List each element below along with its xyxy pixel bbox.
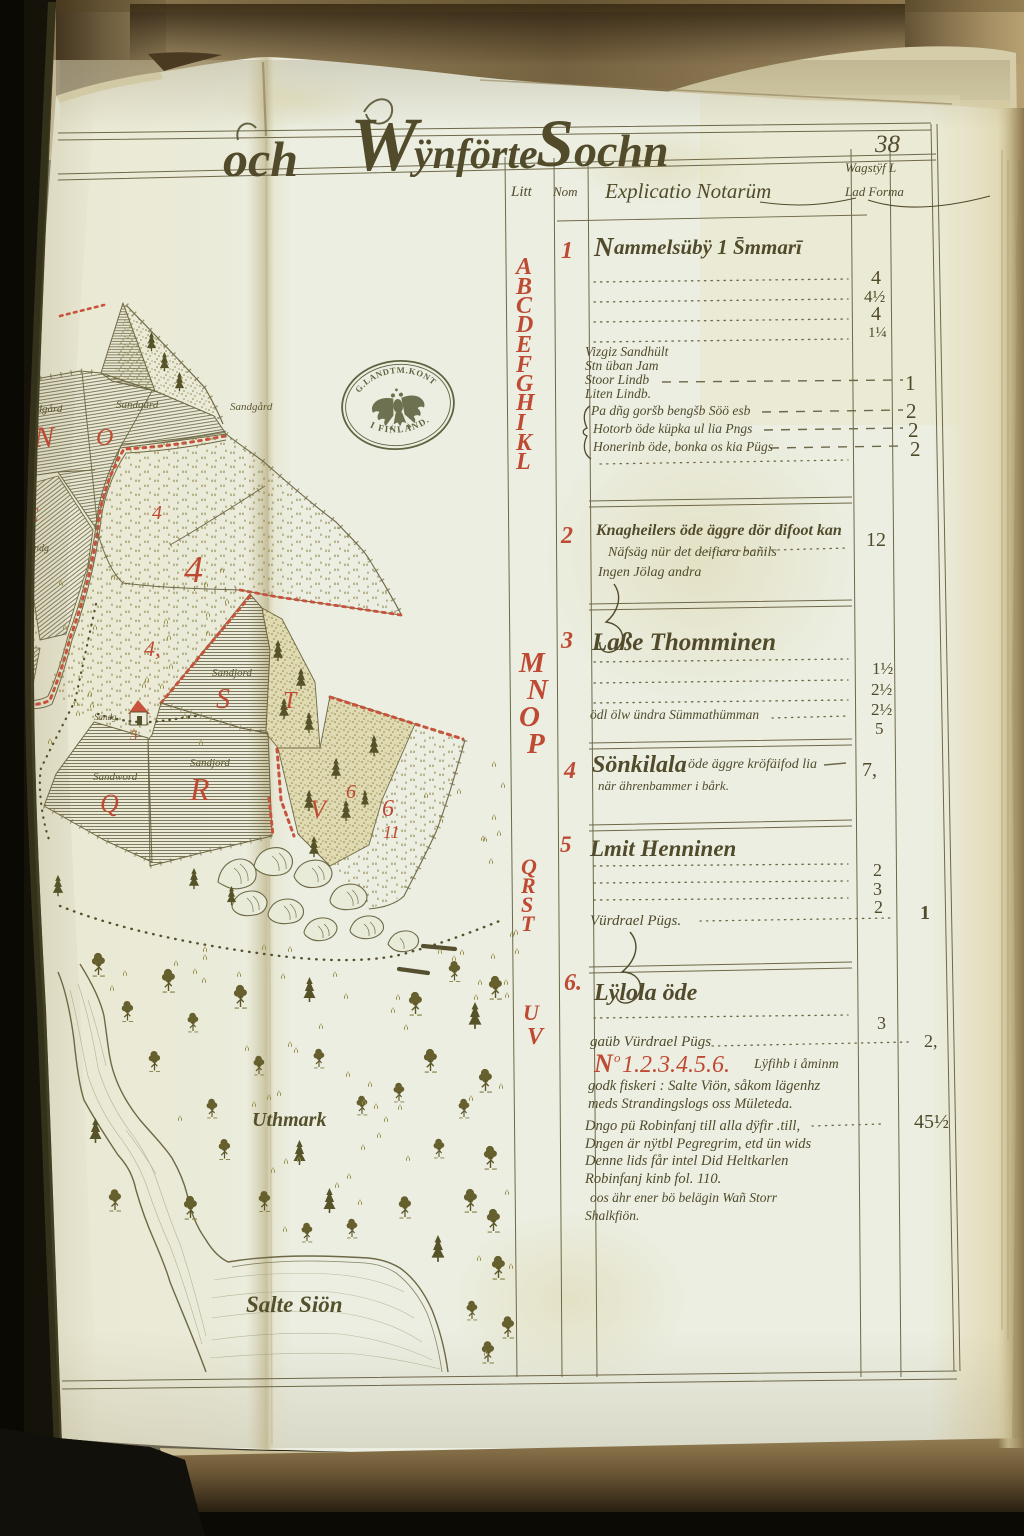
svg-text:6: 6 — [346, 781, 356, 803]
svg-text:1.2.3.4.5.6.: 1.2.3.4.5.6. — [622, 1052, 730, 1078]
svg-text:ÿnförte: ÿnförte — [409, 132, 538, 178]
svg-text:Shalkfiön.: Shalkfiön. — [585, 1208, 639, 1223]
svg-text:Dngo pü Robinfanj till alla dÿ: Dngo pü Robinfanj till alla dÿfir .till, — [584, 1118, 800, 1134]
svg-text:T: T — [283, 688, 298, 714]
svg-text:Lÿfihb i åminm: Lÿfihb i åminm — [753, 1057, 839, 1072]
svg-text:4: 4 — [184, 549, 203, 591]
svg-text:när ährenbammer i bårk.: när ährenbammer i bårk. — [598, 778, 729, 793]
svg-text:4: 4 — [563, 758, 576, 784]
svg-text:38: 38 — [874, 131, 901, 158]
svg-text:Ingen Jölag andra: Ingen Jölag andra — [597, 565, 701, 580]
svg-text:Dngen är nÿtbl Pegregrim, etd: Dngen är nÿtbl Pegregrim, etd ün wids — [584, 1136, 812, 1152]
svg-text:godk fiskeri : Salte Viön, såk: godk fiskeri : Salte Viön, såkom lägenhz — [588, 1078, 820, 1094]
svg-text:S: S — [216, 684, 230, 715]
svg-text:6: 6 — [382, 796, 394, 822]
svg-text:Hotorb öde küpka ul lia Pngs: Hotorb öde küpka ul lia Pngs — [592, 421, 752, 436]
svg-text:4: 4 — [871, 267, 881, 289]
svg-text:O: O — [96, 425, 113, 451]
svg-text:Honerinb öde, bonka os kia Püg: Honerinb öde, bonka os kia Pügs — [592, 439, 773, 454]
svg-text:ochn: ochn — [574, 125, 669, 176]
svg-text:7,: 7, — [862, 759, 877, 781]
svg-text:3: 3 — [877, 1013, 886, 1033]
svg-text:Sandjord: Sandjord — [212, 667, 252, 679]
svg-text:P: P — [526, 728, 545, 760]
svg-text:1: 1 — [905, 371, 916, 395]
svg-text:Näfsäg nür det deifiara bañils: Näfsäg nür det deifiara bañils — [607, 545, 777, 560]
svg-text:S: S — [536, 105, 574, 181]
svg-text:2½: 2½ — [871, 680, 893, 699]
svg-text:Robinfanj kinb fol. 110.: Robinfanj kinb fol. 110. — [584, 1171, 721, 1187]
svg-text:Sandjord: Sandjord — [190, 757, 230, 769]
svg-text:Salte Siön: Salte Siön — [246, 1292, 343, 1317]
svg-text:2: 2 — [910, 437, 921, 461]
svg-text:5: 5 — [875, 719, 884, 738]
svg-text:Vürdrael Pügs.: Vürdrael Pügs. — [590, 913, 681, 929]
svg-text:Sandword: Sandword — [93, 771, 138, 783]
svg-text:gaüb Vürdrael Pügs: gaüb Vürdrael Pügs — [590, 1034, 711, 1050]
svg-text:V: V — [527, 1024, 545, 1050]
svg-text:12: 12 — [866, 529, 886, 551]
svg-text:4,: 4, — [144, 636, 161, 661]
svg-text:Explicatio Notarüm: Explicatio Notarüm — [604, 179, 771, 203]
svg-text:L: L — [515, 449, 531, 475]
svg-text:och: och — [223, 131, 298, 187]
svg-text:1: 1 — [561, 238, 573, 264]
svg-text:1: 1 — [920, 902, 930, 924]
svg-text:ammelsübÿ 1 S̄mmarī: ammelsübÿ 1 S̄mmarī — [614, 235, 804, 259]
svg-text:2,: 2, — [924, 1031, 938, 1051]
svg-text:Liten Lindb.: Liten Lindb. — [584, 386, 651, 401]
svg-text:4: 4 — [871, 303, 881, 325]
svg-text:Stoor Lindb: Stoor Lindb — [585, 372, 649, 387]
svg-text:3: 3 — [873, 879, 882, 899]
svg-text:Lÿlola öde: Lÿlola öde — [593, 980, 698, 1006]
svg-text:Q: Q — [100, 789, 119, 818]
svg-text:1¼: 1¼ — [868, 325, 887, 341]
svg-text:Lmit Henninen: Lmit Henninen — [589, 836, 736, 861]
svg-text:Lad Forma: Lad Forma — [844, 184, 904, 199]
svg-text:Nom: Nom — [552, 184, 578, 199]
svg-text:Uthmark: Uthmark — [252, 1109, 326, 1131]
svg-text:5: 5 — [560, 832, 572, 857]
svg-text:o: o — [614, 1050, 621, 1065]
svg-text:Sönkilala: Sönkilala — [592, 752, 687, 778]
svg-text:2: 2 — [560, 523, 573, 549]
svg-text:Wagstÿf L: Wagstÿf L — [845, 160, 896, 175]
svg-text:W: W — [350, 103, 423, 187]
svg-text:ödl ölw ündra Sümmathümman: ödl ölw ündra Sümmathümman — [590, 707, 759, 722]
svg-text:Sandgård: Sandgård — [116, 399, 159, 411]
svg-text:meds Strandingslogs oss Mülete: meds Strandingslogs oss Mületeda. — [588, 1096, 793, 1112]
svg-text:2: 2 — [874, 897, 883, 917]
svg-text:Vizgiz Sandhült: Vizgiz Sandhült — [585, 344, 670, 359]
svg-text:2: 2 — [873, 860, 882, 880]
svg-text:1½: 1½ — [872, 659, 894, 678]
svg-text:R: R — [189, 771, 210, 807]
svg-text:2½: 2½ — [871, 700, 893, 719]
svg-text:6.: 6. — [564, 970, 582, 996]
svg-text:Litt: Litt — [510, 184, 533, 200]
svg-text:U: U — [523, 1000, 540, 1025]
svg-text:3: 3 — [560, 628, 573, 654]
svg-text:45½: 45½ — [914, 1111, 949, 1133]
svg-text:Denne lids får intel Did Heltk: Denne lids får intel Did Heltkarlen — [584, 1153, 788, 1169]
svg-text:N: N — [593, 232, 615, 262]
svg-text:T: T — [521, 911, 536, 936]
svg-text:öde äggre kröfäifod lia: öde äggre kröfäifod lia — [688, 757, 817, 772]
svg-text:oos ähr ener bö belägin Wañ St: oos ähr ener bö belägin Wañ Storr — [590, 1190, 778, 1205]
svg-text:N: N — [593, 1049, 614, 1078]
svg-text:Laße Thomminen: Laße Thomminen — [591, 629, 776, 656]
svg-text:11: 11 — [383, 822, 400, 842]
svg-text:Knagheilers öde äggre dör difo: Knagheilers öde äggre dör difoot kan — [595, 522, 842, 539]
svg-text:Stn üban Jam: Stn üban Jam — [585, 358, 659, 373]
svg-text:Sandgård: Sandgård — [230, 401, 273, 413]
svg-text:4: 4 — [152, 502, 162, 524]
svg-text:Pa dñg goršb bengšb Söö esb: Pa dñg goršb bengšb Söö esb — [590, 403, 751, 418]
